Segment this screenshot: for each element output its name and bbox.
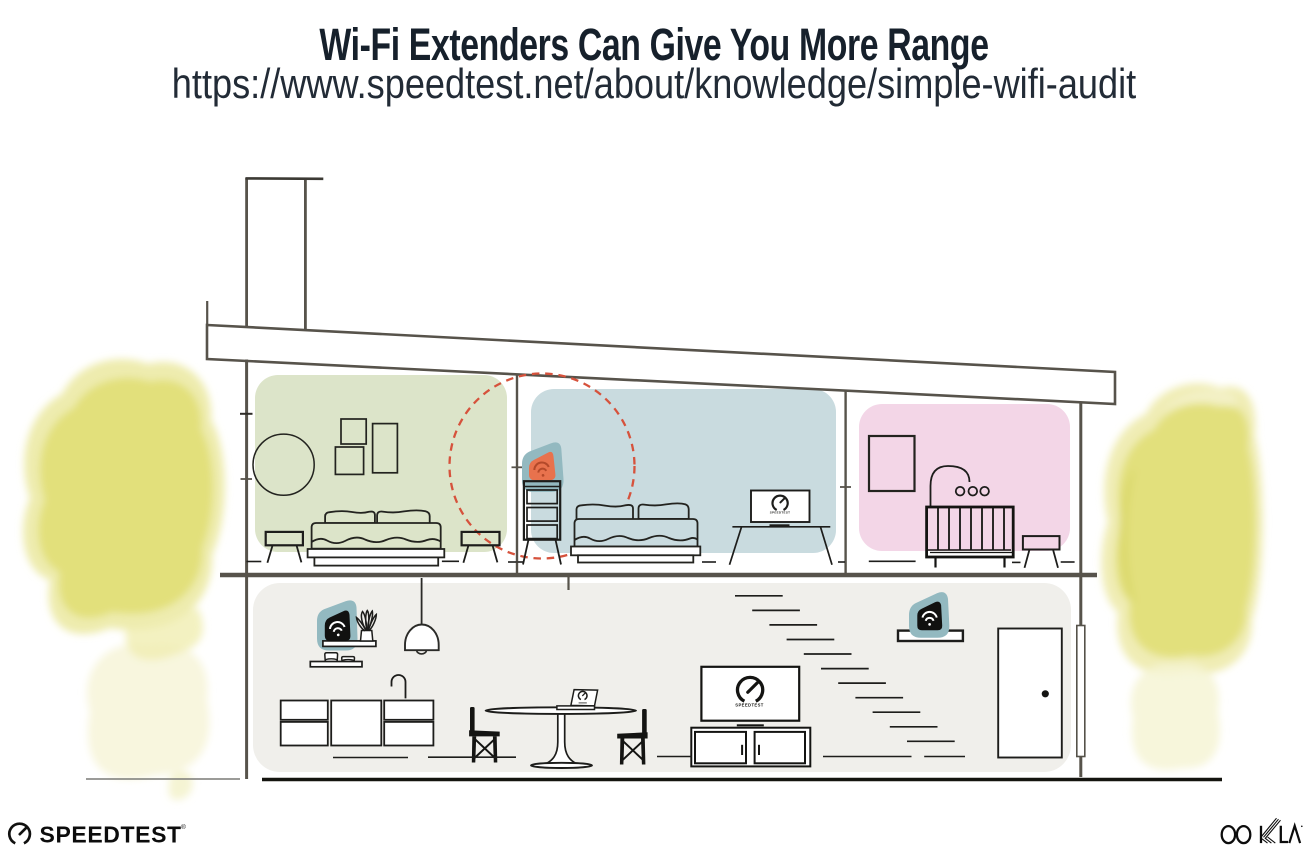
svg-text:SPEEDTEST: SPEEDTEST	[770, 511, 791, 515]
svg-text:®: ®	[181, 823, 186, 831]
svg-text:SPEEDTEST: SPEEDTEST	[40, 822, 182, 848]
svg-text:SPEEDTEST: SPEEDTEST	[735, 703, 764, 708]
